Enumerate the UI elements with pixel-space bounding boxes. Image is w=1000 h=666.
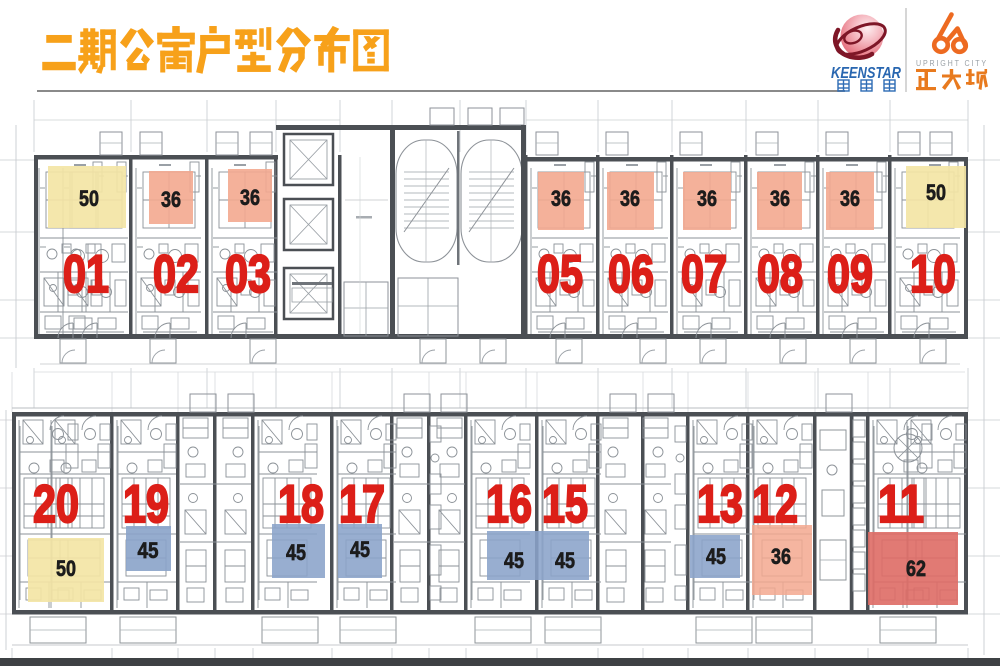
svg-text:36: 36: [240, 185, 260, 210]
svg-text:08: 08: [757, 245, 803, 304]
svg-text:19: 19: [123, 475, 169, 534]
svg-text:36: 36: [770, 186, 790, 211]
svg-text:36: 36: [161, 187, 181, 212]
svg-text:50: 50: [56, 556, 76, 581]
svg-text:36: 36: [771, 544, 791, 569]
svg-text:36: 36: [551, 186, 571, 211]
svg-text:15: 15: [542, 475, 588, 534]
svg-text:45: 45: [286, 540, 306, 565]
svg-text:03: 03: [225, 245, 271, 304]
svg-text:36: 36: [840, 186, 860, 211]
svg-text:11: 11: [878, 475, 924, 534]
svg-text:36: 36: [697, 186, 717, 211]
svg-text:45: 45: [504, 548, 524, 573]
svg-text:18: 18: [278, 475, 324, 534]
svg-text:16: 16: [486, 475, 532, 534]
svg-text:10: 10: [910, 245, 956, 304]
svg-text:50: 50: [79, 186, 99, 211]
svg-text:12: 12: [752, 475, 798, 534]
svg-text:17: 17: [339, 475, 385, 534]
svg-text:36: 36: [620, 186, 640, 211]
svg-text:05: 05: [537, 245, 583, 304]
svg-text:13: 13: [697, 475, 743, 534]
svg-text:45: 45: [706, 544, 726, 569]
svg-text:09: 09: [827, 245, 873, 304]
svg-text:50: 50: [926, 180, 946, 205]
svg-text:45: 45: [138, 538, 159, 563]
svg-text:06: 06: [608, 245, 654, 304]
svg-text:20: 20: [33, 475, 79, 534]
svg-text:45: 45: [350, 537, 370, 562]
svg-text:45: 45: [555, 548, 575, 573]
svg-text:UPRIGHT CITY: UPRIGHT CITY: [916, 58, 988, 68]
svg-text:01: 01: [63, 245, 109, 304]
svg-text:07: 07: [681, 245, 727, 304]
svg-text:02: 02: [153, 245, 199, 304]
svg-text:62: 62: [906, 556, 926, 581]
